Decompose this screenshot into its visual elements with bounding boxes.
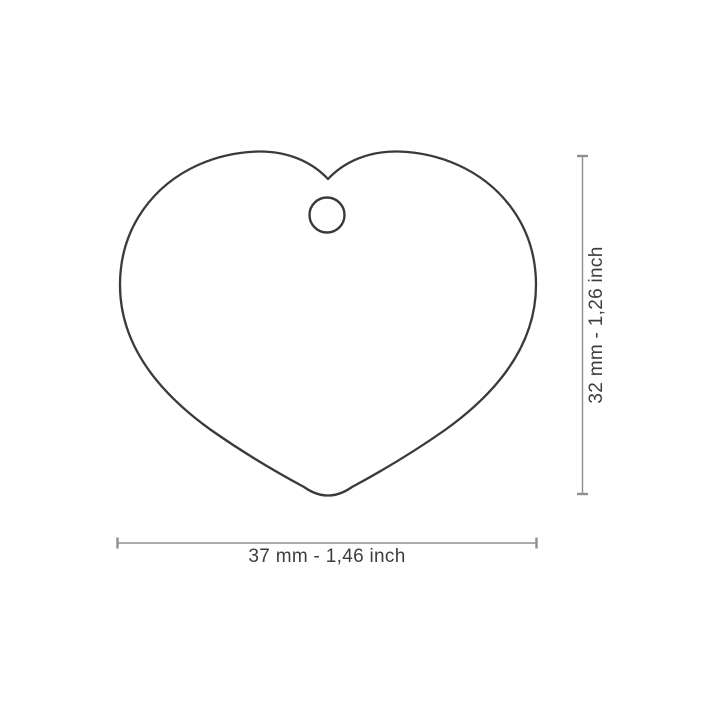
tag-hole-outline bbox=[310, 198, 345, 233]
height-dimension-label: 32 mm - 1,26 inch bbox=[586, 246, 607, 403]
width-dimension-label: 37 mm - 1,46 inch bbox=[248, 546, 405, 567]
heart-tag-outline bbox=[120, 151, 536, 495]
height-dimension: 32 mm - 1,26 inch bbox=[577, 156, 607, 494]
product-dimension-diagram: 37 mm - 1,46 inch 32 mm - 1,26 inch bbox=[0, 0, 720, 720]
width-dimension: 37 mm - 1,46 inch bbox=[118, 538, 537, 568]
diagram-svg: 37 mm - 1,46 inch 32 mm - 1,26 inch bbox=[0, 0, 720, 720]
